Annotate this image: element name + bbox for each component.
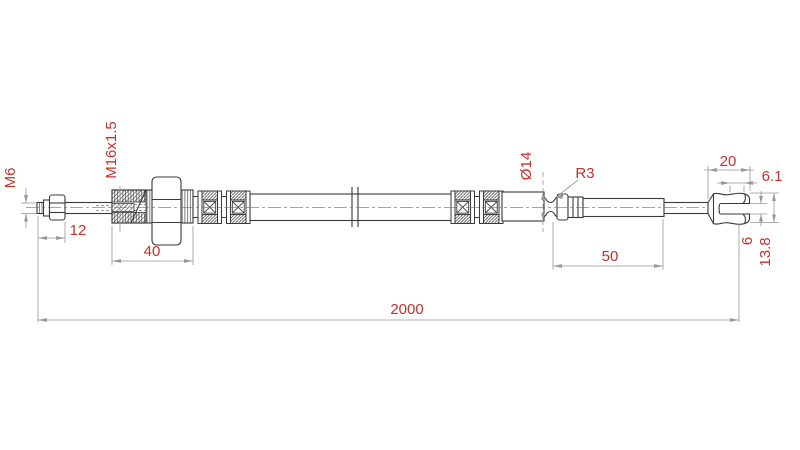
seal-rings <box>568 197 583 218</box>
dim-label-40: 40 <box>144 243 161 260</box>
conduit-crimp-left <box>198 191 250 224</box>
dim-label-6: 6 <box>739 237 756 245</box>
dim-2000: 2000 <box>38 225 739 322</box>
dim-12: 12 <box>38 216 86 322</box>
fork-clevis-end <box>708 193 750 224</box>
dim-20: 20 <box>704 153 754 199</box>
adjuster-hex-nut <box>152 177 181 245</box>
groove-neck <box>544 198 557 217</box>
technical-drawing: M6 M16x1.5 12 40 <box>0 0 800 450</box>
dim-label-20: 20 <box>720 153 737 170</box>
dim-50: 50 <box>553 219 663 270</box>
drawing-canvas: M6 M16x1.5 12 40 <box>0 0 800 450</box>
dim-label-m16: M16x1.5 <box>103 121 120 179</box>
dim-label-2000: 2000 <box>390 301 423 318</box>
cable-assembly <box>26 177 750 245</box>
dim-label-12: 12 <box>70 222 87 239</box>
end-ferrule <box>502 192 544 221</box>
outer-conduit <box>250 187 452 227</box>
dim-label-61: 6.1 <box>762 168 783 185</box>
dim-label-50: 50 <box>602 248 619 265</box>
dim-label-dia14: Ø14 <box>518 152 535 180</box>
dim-138: 13.8 <box>750 193 779 267</box>
conduit-crimp-right <box>451 191 503 224</box>
dim-thread-left: M6 <box>2 168 36 228</box>
dim-label-138: 13.8 <box>757 237 774 266</box>
dim-label-r3: R3 <box>575 165 594 182</box>
dim-label-m6: M6 <box>2 168 19 189</box>
